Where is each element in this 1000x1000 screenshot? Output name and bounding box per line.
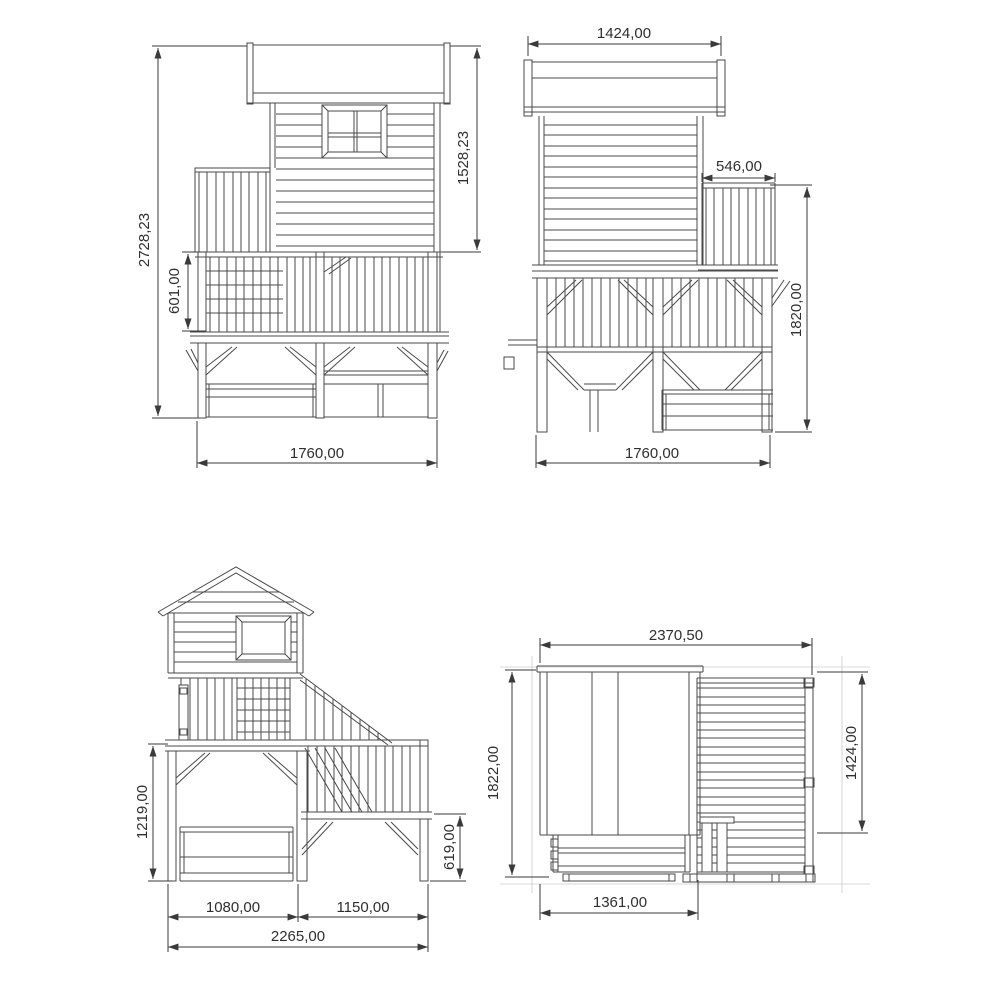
extension-lines [182, 252, 206, 331]
dim-label: 1820,00 [788, 283, 805, 337]
dim-side-platform-height: 1820,00 [770, 185, 812, 432]
technical-drawing-canvas: 2728,23 1528,23 601,00 1760,00 [0, 0, 1000, 1000]
dim-label: 1822,00 [485, 746, 502, 800]
support-braces [176, 753, 297, 785]
deck-boards [697, 697, 805, 872]
dim-plan-total-depth: 1822,00 [485, 670, 549, 877]
wall-corner-trims [539, 116, 703, 265]
post-cap [551, 839, 558, 847]
post [428, 252, 437, 332]
dim-side-width: 1760,00 [536, 435, 770, 468]
roof-end-cap-left [524, 60, 532, 116]
base-board [683, 874, 815, 882]
deck-band [532, 265, 778, 278]
balcony-rails [698, 183, 778, 270]
landing-deck [301, 812, 432, 819]
roof-end-cap-left [247, 43, 253, 104]
sandbox-outline [553, 835, 690, 872]
dim-label: 601,00 [166, 268, 183, 314]
dim-plan-total-width: 2370,50 [540, 627, 812, 675]
dim-label: 1080,00 [206, 899, 260, 916]
railing-balusters [181, 678, 232, 740]
dim-label: 1424,00 [843, 726, 860, 780]
wall-siding-lines [544, 125, 697, 261]
post [297, 751, 307, 881]
dim-label: 1760,00 [290, 445, 344, 462]
dim-label: 1424,00 [597, 25, 651, 42]
railing-rails [165, 673, 428, 751]
post [762, 278, 772, 432]
post [428, 343, 437, 418]
dim-front-width: 1760,00 [197, 420, 437, 468]
railing-rails [190, 252, 449, 343]
post [316, 252, 324, 332]
climbing-grid [237, 678, 290, 740]
sandbox-boards [662, 390, 773, 430]
plan-view: 2370,50 1822,00 1424,00 1361,00 [485, 627, 870, 920]
dim-label: 546,00 [716, 158, 762, 175]
window-outer-frame [236, 616, 291, 660]
lower-braces [547, 352, 762, 432]
ladder-rail [702, 823, 712, 872]
dim-front-house-height: 1528,23 [443, 46, 481, 252]
post [537, 278, 547, 432]
dim-side-roof-length: 1424,00 [528, 25, 721, 56]
dim-stair-deck-height: 1219,00 [134, 744, 172, 881]
dim-label: 1150,00 [336, 899, 389, 916]
railing-balusters [287, 257, 423, 332]
post [316, 343, 324, 418]
ladder-rungs [508, 340, 537, 345]
dim-label: 2728,23 [136, 213, 153, 267]
balcony-slats [714, 188, 764, 265]
dim-stair-landing-height: 619,00 [430, 814, 466, 881]
front-elevation-view: 2728,23 1528,23 601,00 1760,00 [136, 43, 481, 468]
ladder-step [504, 357, 514, 369]
dim-side-balcony-depth: 546,00 [702, 158, 775, 182]
gable-siding [168, 592, 303, 613]
dim-label: 1219,00 [134, 785, 151, 839]
ladder-rail [717, 823, 727, 872]
dim-plan-deck-depth: 1424,00 [817, 672, 868, 833]
post [168, 751, 176, 881]
roof-panels [540, 672, 700, 835]
mid-rail [537, 347, 772, 352]
dim-stair-bottom: 1080,00 1150,00 2265,00 [168, 884, 428, 952]
dim-plan-roof-width: 1361,00 [540, 880, 698, 920]
sandbox-boards [206, 371, 428, 417]
dim-label: 1528,23 [455, 131, 472, 185]
sandbox-boards [180, 827, 293, 881]
platform-balusters [556, 278, 753, 347]
dim-label: 1760,00 [625, 445, 679, 462]
ladder-top-cap [700, 817, 734, 823]
stair-elevation-view: 1219,00 619,00 1080,00 1150,00 2265,00 [134, 567, 466, 952]
roof-lines [247, 45, 450, 103]
roof-end-cap-right [717, 60, 725, 116]
dim-label: 1361,00 [593, 894, 647, 911]
roof-end-cap-right [444, 43, 450, 104]
playhouse-drawing-svg: 2728,23 1528,23 601,00 1760,00 [0, 0, 1000, 1000]
landing-braces [302, 822, 418, 855]
dim-label: 619,00 [441, 824, 458, 870]
post [420, 740, 428, 812]
post [198, 343, 206, 418]
dim-label: 2370,50 [649, 627, 703, 644]
roof-lines [524, 62, 725, 112]
post-cap [551, 862, 558, 870]
post [198, 252, 206, 332]
side-elevation-view: 1424,00 546,00 1820,00 1760,00 [504, 25, 812, 468]
climbing-grid [206, 257, 283, 332]
dim-label: 2265,00 [271, 928, 325, 945]
stair-stringers [305, 748, 372, 812]
deck-edge [697, 678, 813, 875]
post [420, 819, 428, 881]
base-board [563, 874, 675, 881]
dim-front-railing-height: 601,00 [166, 252, 206, 331]
post-cap [551, 851, 558, 859]
side-railing-band [805, 678, 813, 875]
